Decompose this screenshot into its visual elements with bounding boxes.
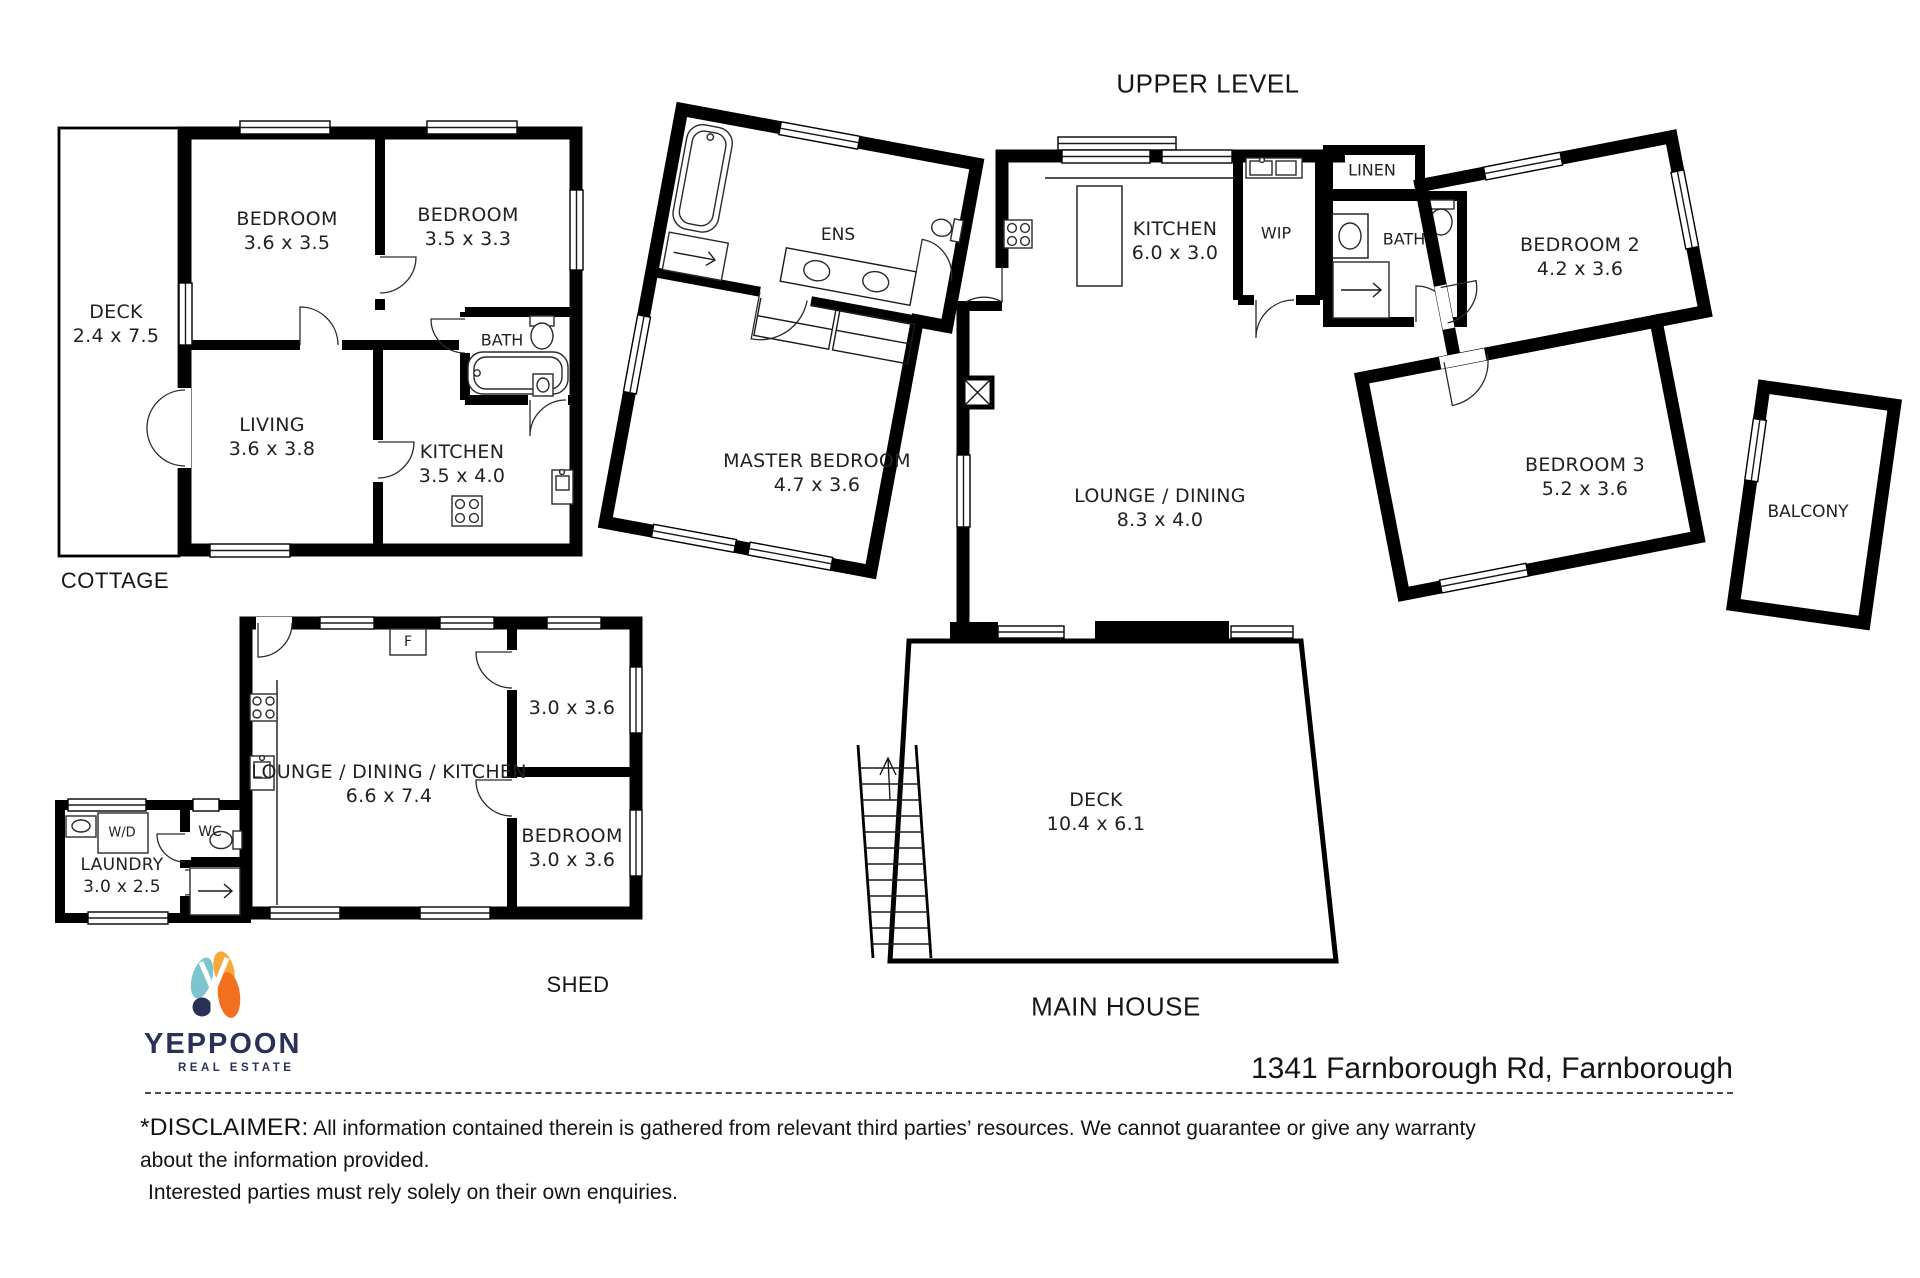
stove-icon xyxy=(452,496,482,526)
main-wip-label: WIP xyxy=(1261,224,1291,243)
main-house-title: MAIN HOUSE xyxy=(1031,992,1201,1023)
property-address: 1341 Farnborough Rd, Farnborough xyxy=(1100,1052,1733,1086)
room-name: LOUNGE / DINING / KITCHEN xyxy=(251,760,527,784)
cottage-bath-label: BATH xyxy=(481,331,523,350)
bath-shower-icon xyxy=(1333,262,1389,318)
logo-icon xyxy=(187,949,243,1022)
brand-name: YEPPOON xyxy=(144,1028,301,1061)
room-dims: 6.0 x 3.0 xyxy=(1132,241,1218,265)
shed-laundry-label: LAUNDRY 3.0 x 2.5 xyxy=(81,854,164,898)
brand-subtitle: REAL ESTATE xyxy=(178,1062,294,1074)
main-kitchen-label: KITCHEN 6.0 x 3.0 xyxy=(1132,217,1218,265)
room-name: DECK xyxy=(1047,788,1146,812)
main-deck-label: DECK 10.4 x 6.1 xyxy=(1047,788,1146,836)
kitchen-island xyxy=(1077,186,1122,286)
cottage-title: COTTAGE xyxy=(61,568,169,594)
shed-doors xyxy=(157,617,518,896)
room-dims: 4.2 x 3.6 xyxy=(1520,257,1640,281)
room-name: KITCHEN xyxy=(1132,217,1218,241)
disclaimer-line2: Interested parties must rely solely on t… xyxy=(148,1177,1500,1209)
shed-bedroom-label: BEDROOM 3.0 x 3.6 xyxy=(521,824,622,872)
cottage-bedroom2-label: BEDROOM 3.5 x 3.3 xyxy=(417,203,518,251)
room-name: LOUNGE / DINING xyxy=(1074,484,1246,508)
room-dims: 3.5 x 4.0 xyxy=(419,464,505,488)
shed-lounge-label: LOUNGE / DINING / KITCHEN 6.6 x 7.4 xyxy=(251,760,527,808)
room-dims: 8.3 x 4.0 xyxy=(1074,508,1246,532)
room-name: LAUNDRY xyxy=(81,854,164,876)
room-name: DECK xyxy=(73,300,159,324)
room-dims: 3.5 x 3.3 xyxy=(417,227,518,251)
room-name: MASTER BEDROOM xyxy=(723,449,911,473)
shed-title: SHED xyxy=(546,972,609,998)
main-house-left-wing xyxy=(598,102,978,583)
room-dims: 3.6 x 3.5 xyxy=(236,231,337,255)
room-name: BEDROOM xyxy=(521,824,622,848)
room-dims: 3.0 x 2.5 xyxy=(81,876,164,898)
main-master-label: MASTER BEDROOM 4.7 x 3.6 xyxy=(723,449,911,497)
main-bedroom3-label: BEDROOM 3 5.2 x 3.6 xyxy=(1525,453,1645,501)
room-name: BEDROOM xyxy=(417,203,518,227)
disclaimer-line1: All information contained therein is gat… xyxy=(140,1117,1476,1172)
cottage-kitchen-label: KITCHEN 3.5 x 4.0 xyxy=(419,440,505,488)
shed-wc-label: WC xyxy=(198,824,222,840)
main-stove-icon xyxy=(1004,220,1032,248)
main-bedroom2-label: BEDROOM 2 4.2 x 3.6 xyxy=(1520,233,1640,281)
laundry-sink-icon xyxy=(66,816,96,837)
room-dims: 5.2 x 3.6 xyxy=(1525,477,1645,501)
toilet-icon xyxy=(530,316,554,349)
upper-level-title: UPPER LEVEL xyxy=(1116,69,1299,100)
room-dims: 6.6 x 7.4 xyxy=(251,784,527,808)
main-bath-label: BATH xyxy=(1383,230,1425,249)
void-cross-icon xyxy=(963,378,992,407)
shed-stove-icon xyxy=(250,694,277,721)
disclaimer-prefix: *DISCLAIMER: xyxy=(140,1114,309,1141)
bath-vanity-icon xyxy=(1332,214,1368,258)
room-dims: 4.7 x 3.6 xyxy=(723,473,911,497)
shed-wd-label: W/D xyxy=(108,826,135,841)
divider-dashed-line xyxy=(145,1092,1733,1094)
floorplan-page: UPPER LEVEL DECK 2.4 x 7.5 BEDROOM 3.6 x… xyxy=(0,0,1920,1278)
shed-shower-icon xyxy=(190,868,240,915)
shed-room-label: 3.0 x 3.6 xyxy=(529,696,615,720)
main-balcony-label: BALCONY xyxy=(1767,502,1848,522)
room-name: KITCHEN xyxy=(419,440,505,464)
room-dims: 2.4 x 7.5 xyxy=(73,324,159,348)
kitchen-sink-icon xyxy=(552,470,573,504)
cottage-bedroom1-label: BEDROOM 3.6 x 3.5 xyxy=(236,207,337,255)
main-ens-label: ENS xyxy=(821,225,855,245)
floorplan-canvas xyxy=(0,0,1920,1278)
cottage-living-label: LIVING 3.6 x 3.8 xyxy=(229,413,315,461)
room-name: BEDROOM xyxy=(236,207,337,231)
cottage-deck-label: DECK 2.4 x 7.5 xyxy=(73,300,159,348)
room-name: LIVING xyxy=(229,413,315,437)
main-lounge-label: LOUNGE / DINING 8.3 x 4.0 xyxy=(1074,484,1246,532)
room-name: BEDROOM 2 xyxy=(1520,233,1640,257)
main-house-central xyxy=(950,137,1462,641)
wip-sink-icon xyxy=(1246,158,1302,178)
sink-icon xyxy=(533,374,553,396)
disclaimer-text: *DISCLAIMER: All information contained t… xyxy=(140,1112,1500,1209)
room-name: BEDROOM 3 xyxy=(1525,453,1645,477)
shed-fireplace-label: F xyxy=(404,634,412,650)
main-linen-label: LINEN xyxy=(1348,161,1396,180)
room-dims: 10.4 x 6.1 xyxy=(1047,812,1146,836)
ens-toilet-icon xyxy=(930,215,964,242)
room-dims: 3.0 x 3.6 xyxy=(521,848,622,872)
room-dims: 3.6 x 3.8 xyxy=(229,437,315,461)
